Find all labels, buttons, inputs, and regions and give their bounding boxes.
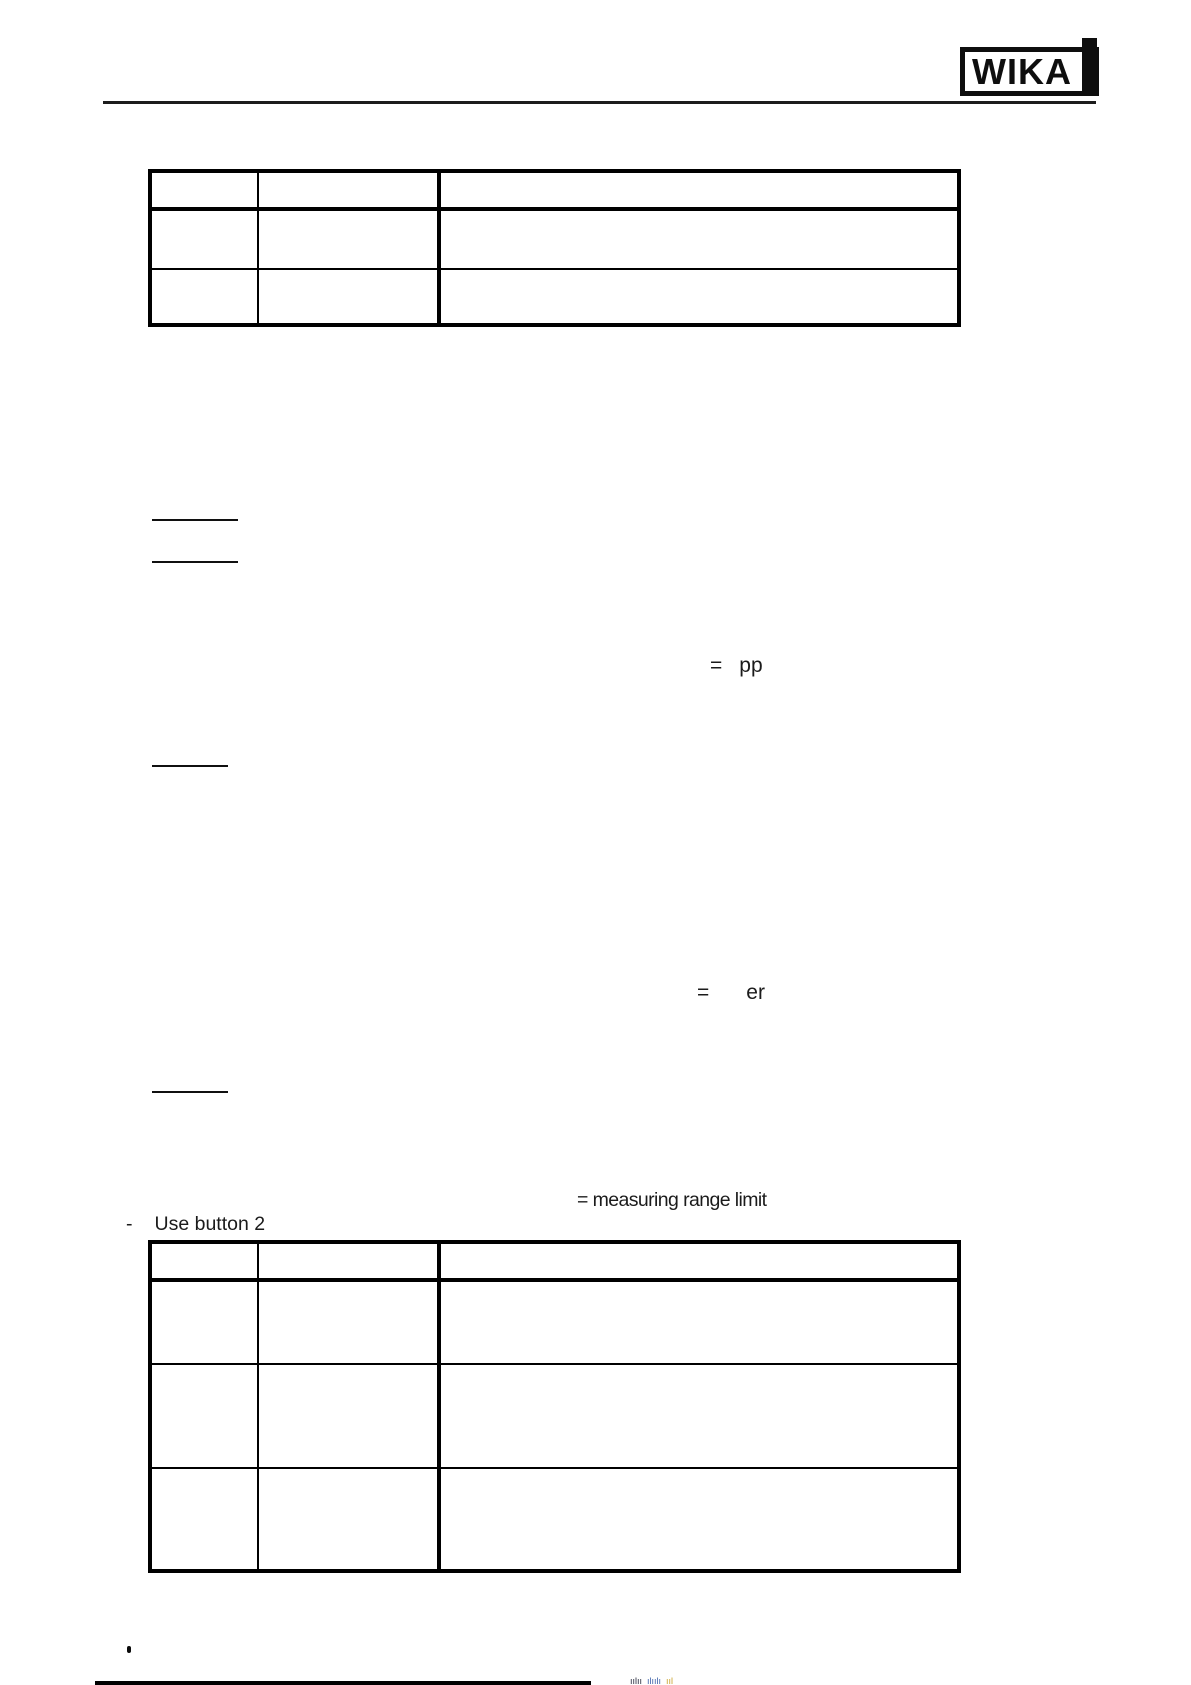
eq-er-value: er bbox=[746, 981, 765, 1004]
header-divider bbox=[103, 101, 1096, 104]
clipped-footer-text-blue: ılıılı bbox=[647, 1676, 661, 1685]
bottom-table-header-divider bbox=[152, 1278, 957, 1282]
bottom-table-row-divider-1 bbox=[152, 1363, 957, 1365]
eq-pp-equals-sign: = bbox=[710, 654, 722, 677]
clipped-footer-text-dark: ıılıı bbox=[630, 1676, 642, 1685]
eq-pp-value: pp bbox=[739, 654, 762, 677]
footer-divider bbox=[95, 1681, 591, 1685]
top-table-row-divider bbox=[152, 268, 957, 270]
wika-logo-text: WIKA bbox=[965, 54, 1072, 90]
top-table-col-divider-1 bbox=[257, 173, 259, 323]
clipped-footer-text: ıılıı ılıılı ııl bbox=[630, 1676, 830, 1685]
top-table-col-divider-2 bbox=[437, 173, 441, 323]
underline-fragment-1 bbox=[152, 519, 238, 521]
bottom-table-col-divider-1 bbox=[257, 1244, 259, 1569]
clipped-footer-text-yellow: ııl bbox=[666, 1676, 673, 1685]
top-table bbox=[148, 169, 961, 327]
eq-pp-annotation: =pp bbox=[710, 654, 763, 678]
bullet-point bbox=[127, 1646, 131, 1653]
wika-logo-bar bbox=[1082, 38, 1097, 96]
bottom-table-col-divider-2 bbox=[437, 1244, 441, 1569]
wika-logo: WIKA bbox=[960, 47, 1099, 96]
document-page: WIKA =pp =er = measuring range limit -Us… bbox=[0, 0, 1191, 1685]
top-table-header-divider bbox=[152, 207, 957, 211]
eq-er-equals-sign: = bbox=[697, 981, 709, 1004]
measuring-range-note: = measuring range limit bbox=[577, 1189, 766, 1212]
use-button-2-text: Use button 2 bbox=[155, 1213, 266, 1235]
underline-fragment-2 bbox=[152, 561, 238, 563]
eq-er-annotation: =er bbox=[697, 981, 765, 1005]
underline-fragment-3 bbox=[152, 765, 228, 767]
list-dash: - bbox=[126, 1213, 133, 1235]
bottom-table bbox=[148, 1240, 961, 1573]
bottom-table-row-divider-2 bbox=[152, 1467, 957, 1469]
underline-fragment-4 bbox=[152, 1091, 228, 1093]
use-button-2-line: -Use button 2 bbox=[126, 1213, 265, 1236]
